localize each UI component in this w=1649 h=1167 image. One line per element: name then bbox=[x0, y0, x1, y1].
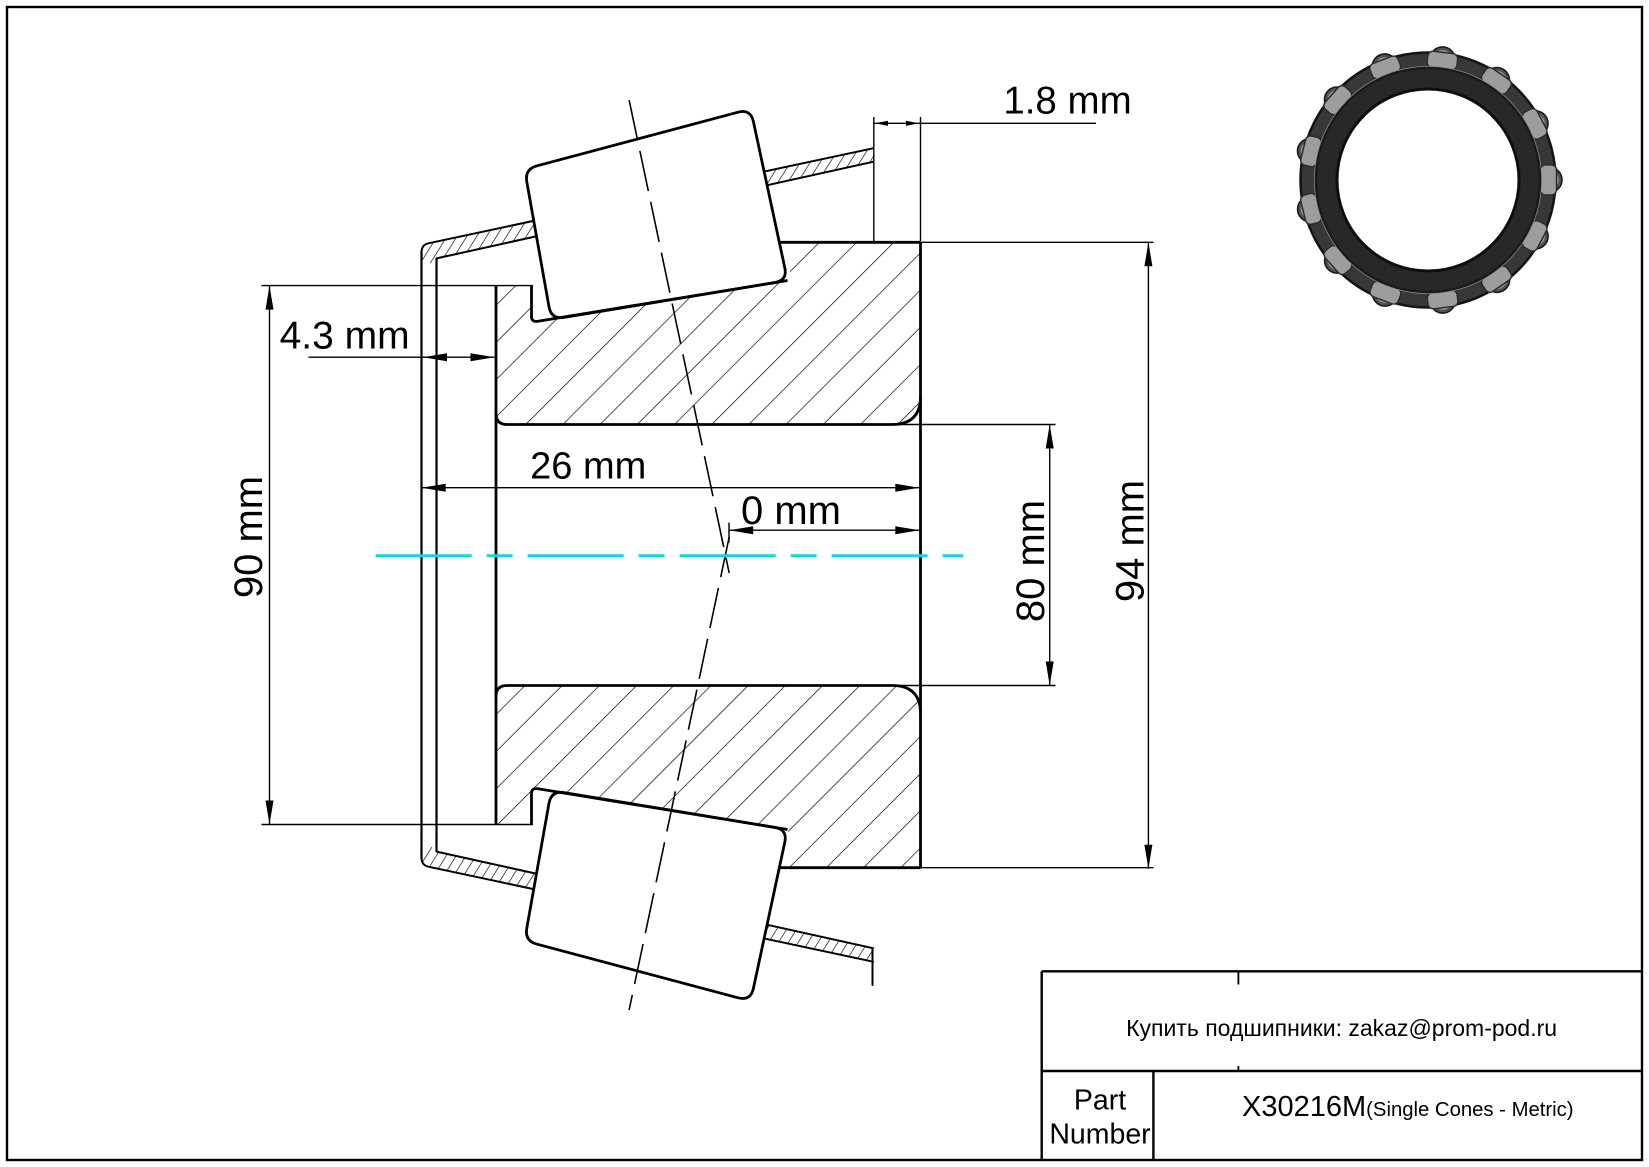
svg-text:1.8 mm: 1.8 mm bbox=[1003, 80, 1131, 123]
svg-text:80 mm: 80 mm bbox=[1009, 500, 1053, 622]
svg-text:Number: Number bbox=[1049, 1119, 1151, 1151]
svg-text:94 mm: 94 mm bbox=[1109, 480, 1153, 602]
svg-text:4.3 mm: 4.3 mm bbox=[280, 315, 410, 358]
svg-text:26 mm: 26 mm bbox=[530, 446, 646, 488]
svg-text:Купить подшипники: zakaz@prom-: Купить подшипники: zakaz@prom-pod.ru bbox=[1126, 1015, 1557, 1041]
svg-text:Part: Part bbox=[1074, 1085, 1126, 1117]
svg-text:90 mm: 90 mm bbox=[227, 476, 271, 598]
svg-text:X30216M(Single Cones - Metric): X30216M(Single Cones - Metric) bbox=[1242, 1091, 1574, 1123]
svg-text:0 mm: 0 mm bbox=[741, 489, 841, 533]
